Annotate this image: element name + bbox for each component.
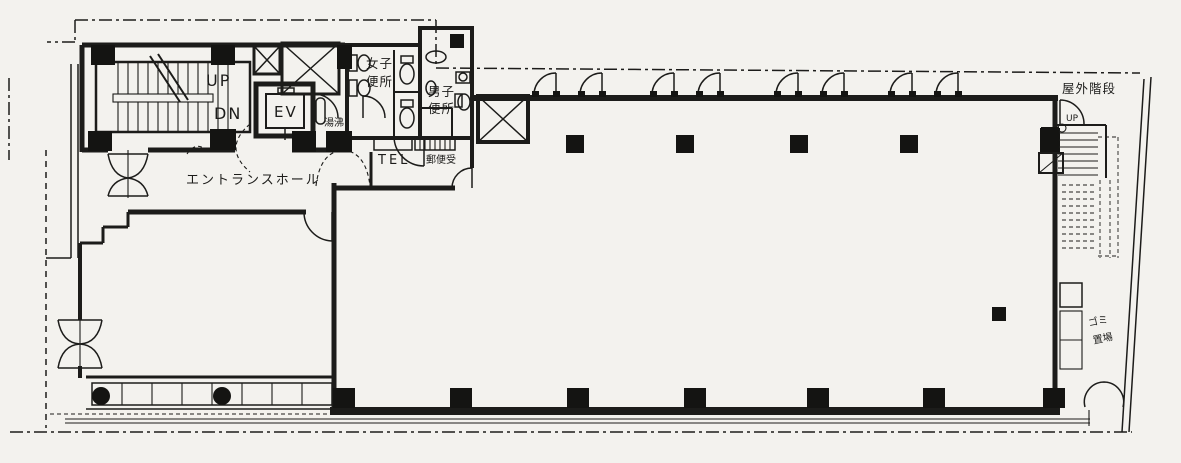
- window-symbols: [532, 73, 962, 97]
- garbage-label-2: 置場: [1092, 330, 1114, 347]
- site-edge-slant: [1122, 77, 1151, 432]
- womens-toilet-label-1: 女子: [366, 56, 393, 71]
- storefront-band: [86, 377, 332, 409]
- mailbox-label: 郵便受: [426, 153, 456, 166]
- floor-plan-drawing: UP DN EV 湯沸: [0, 0, 1181, 463]
- outdoor-stairs-up-label: UP: [1066, 114, 1079, 124]
- garbage-area: ゴミ 置場: [1060, 283, 1124, 407]
- round-column: [92, 387, 110, 405]
- outdoor-stair-treads-dashed: [1062, 137, 1118, 258]
- floor-plan-sheet: UP DN EV 湯沸: [0, 0, 1181, 463]
- mens-toilet-label-1: 男子: [428, 84, 455, 99]
- equipment-box: [1060, 283, 1082, 307]
- mens-toilet-label-2: 便所: [428, 101, 455, 116]
- womens-toilet-label-2: 便所: [366, 74, 393, 89]
- stair-down-label: DN: [214, 104, 242, 123]
- double-swing-door-top: [108, 150, 148, 198]
- double-door-arc: [1084, 382, 1123, 407]
- stair-handrail: [113, 94, 213, 102]
- lower-left-room: [58, 212, 332, 409]
- outdoor-stairs: 屋外階段 UP: [1039, 81, 1118, 258]
- entrance-hall-label: エントランスホール: [186, 173, 321, 188]
- garbage-label-1: ゴミ: [1087, 312, 1109, 329]
- hot-water-label: 湯沸: [324, 116, 344, 129]
- main-hall: [50, 34, 1090, 426]
- door-arc: [304, 212, 332, 241]
- columns: [88, 34, 1065, 408]
- stair-up-label: UP: [206, 71, 231, 90]
- telephone-label: TEL: [377, 153, 410, 168]
- double-swing-door-west: [58, 316, 102, 370]
- door-arc: [452, 168, 472, 188]
- hot-water-room: 湯沸: [314, 94, 344, 131]
- round-column: [213, 387, 231, 405]
- site-boundary: [9, 20, 1151, 432]
- door-arc: [314, 94, 338, 118]
- outdoor-stairs-label: 屋外階段: [1062, 81, 1116, 96]
- elevator-label: EV: [274, 103, 298, 121]
- toilet-block: 女子 便所 男子 便所: [347, 28, 472, 166]
